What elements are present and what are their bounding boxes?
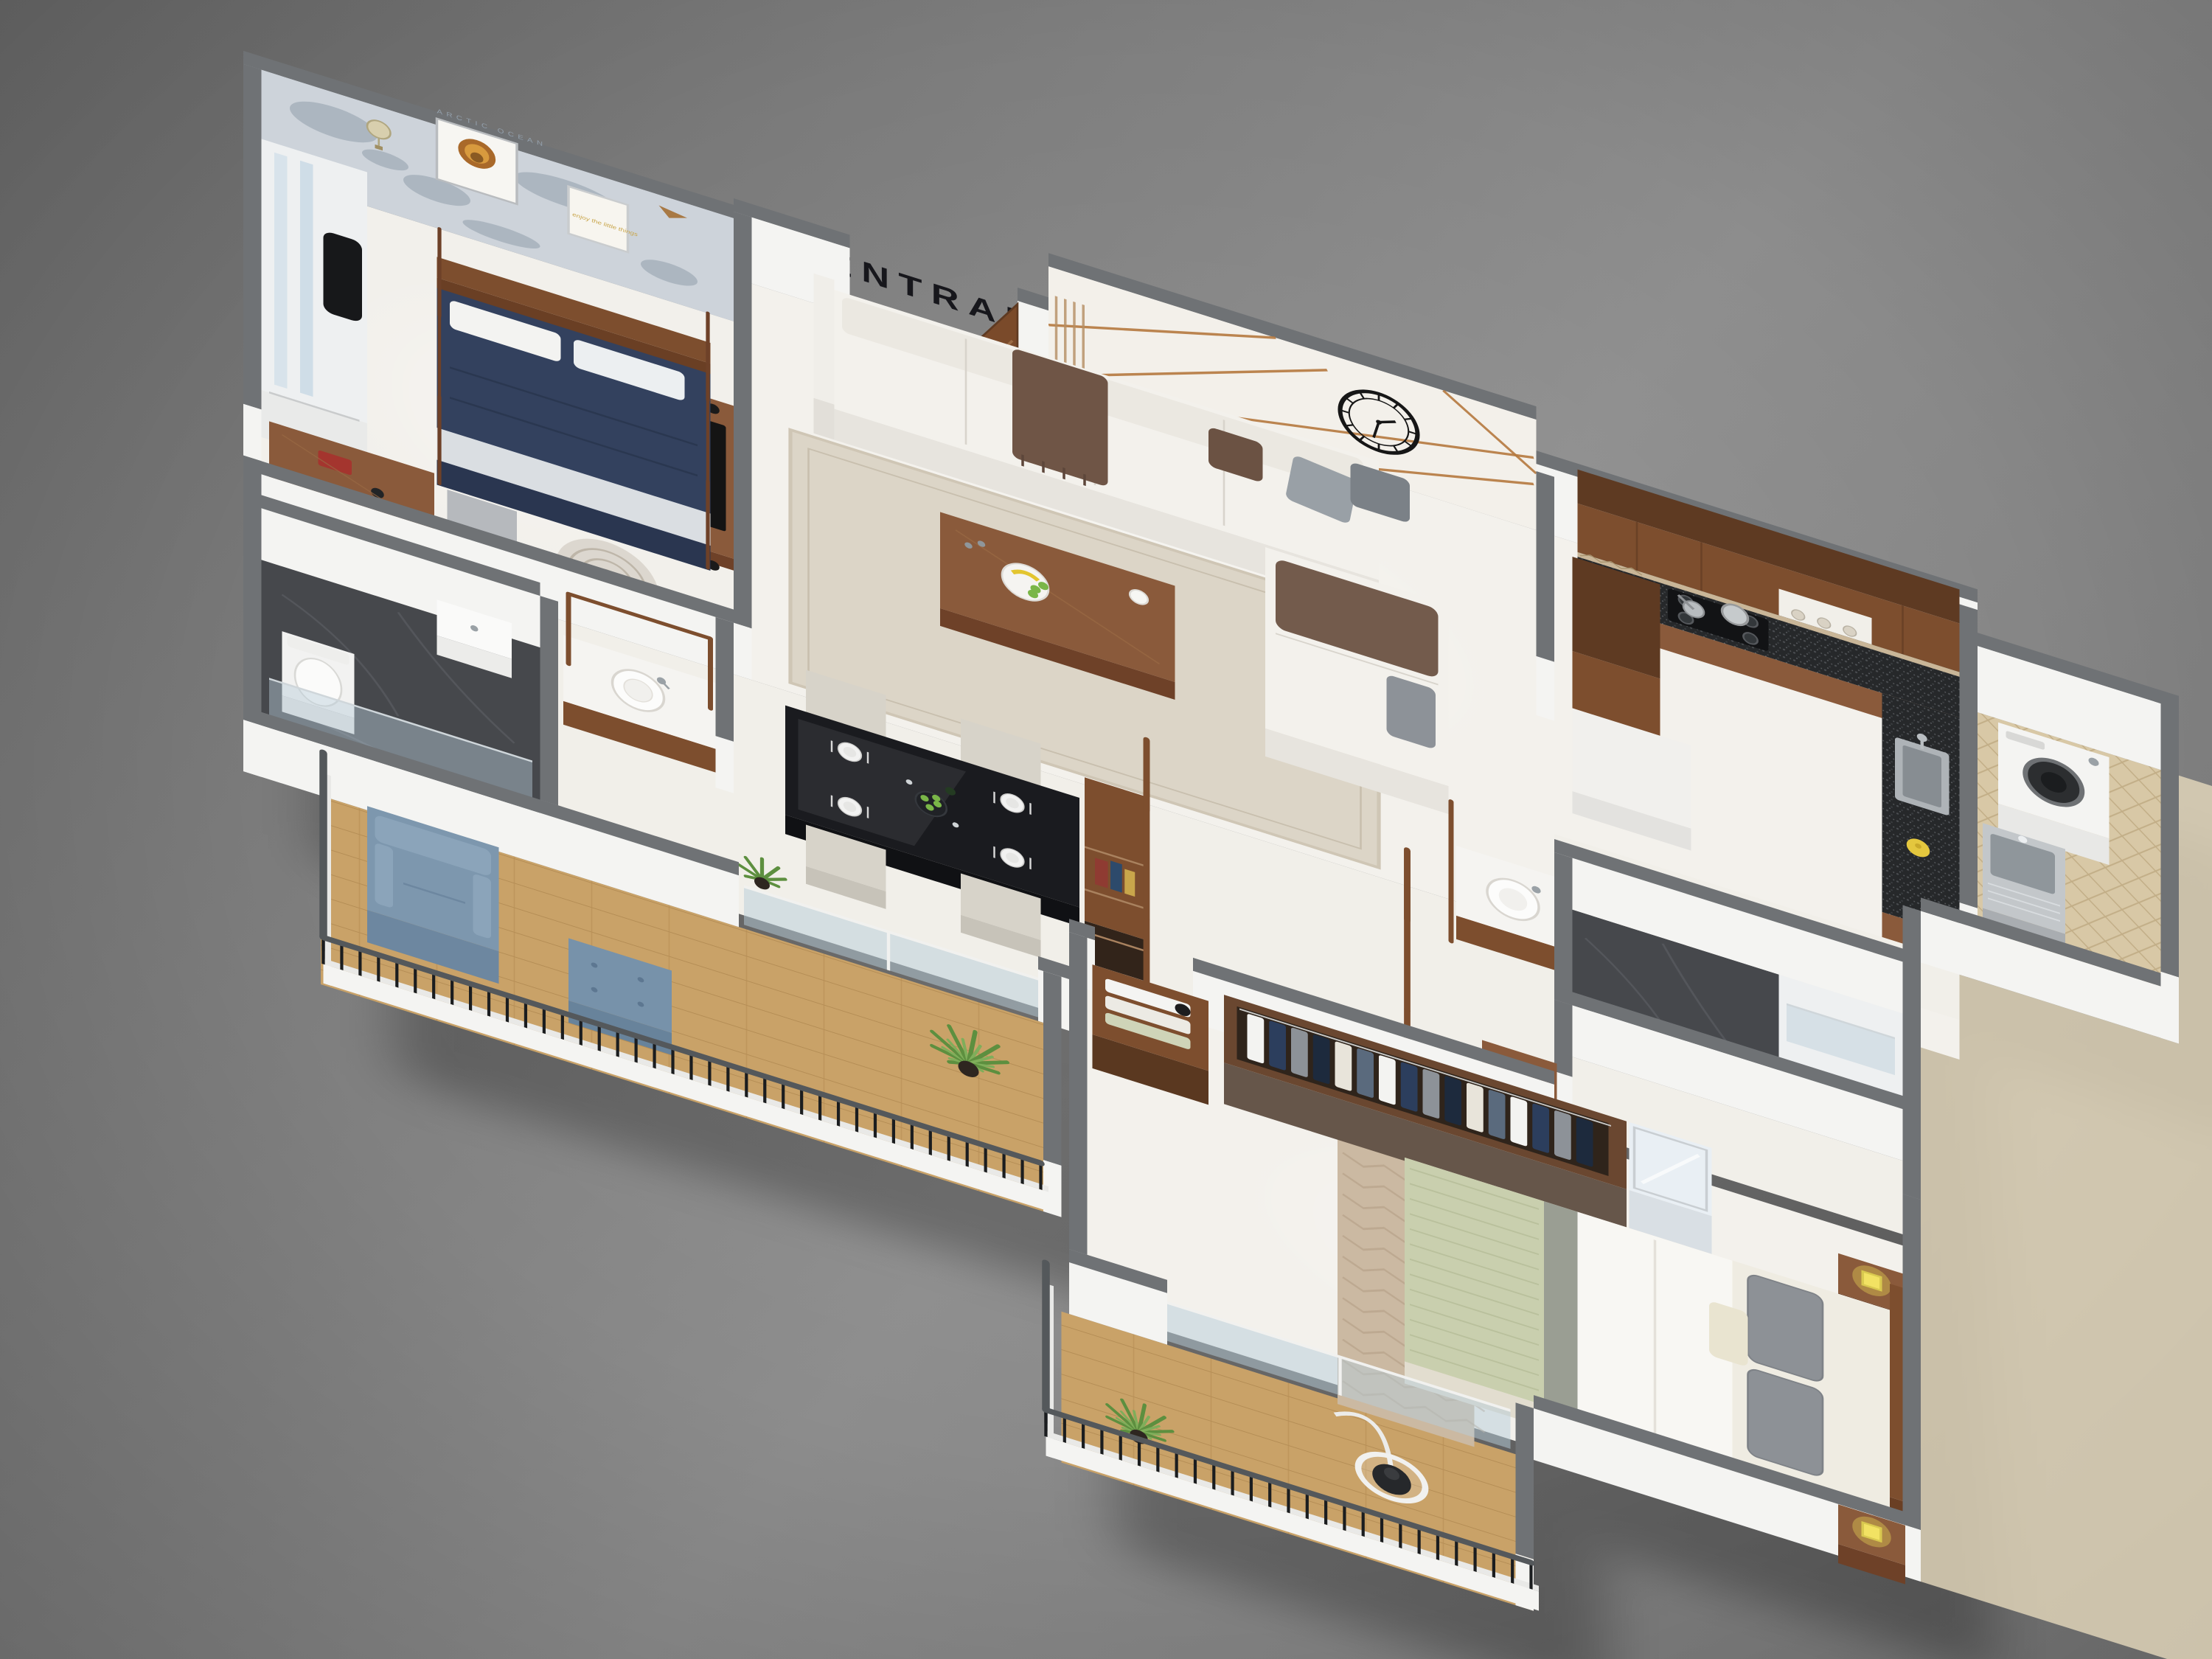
wall-kitchen-stub	[1537, 471, 1555, 721]
wall-bath-left	[243, 456, 262, 777]
apartment-3d-floorplan-render: ENTRANCEenjoy the little thingsARCTIC OC…	[0, 0, 2212, 1659]
wall-kids-left	[243, 64, 262, 513]
wall-kids-right	[734, 226, 752, 680]
wall-master-right	[1903, 1194, 1921, 1582]
wall-vanity-right	[716, 617, 734, 793]
wall-living-balcony-right	[1043, 971, 1062, 1217]
kids-wardrobe	[262, 139, 368, 470]
wall-utility-right	[2161, 690, 2180, 1043]
